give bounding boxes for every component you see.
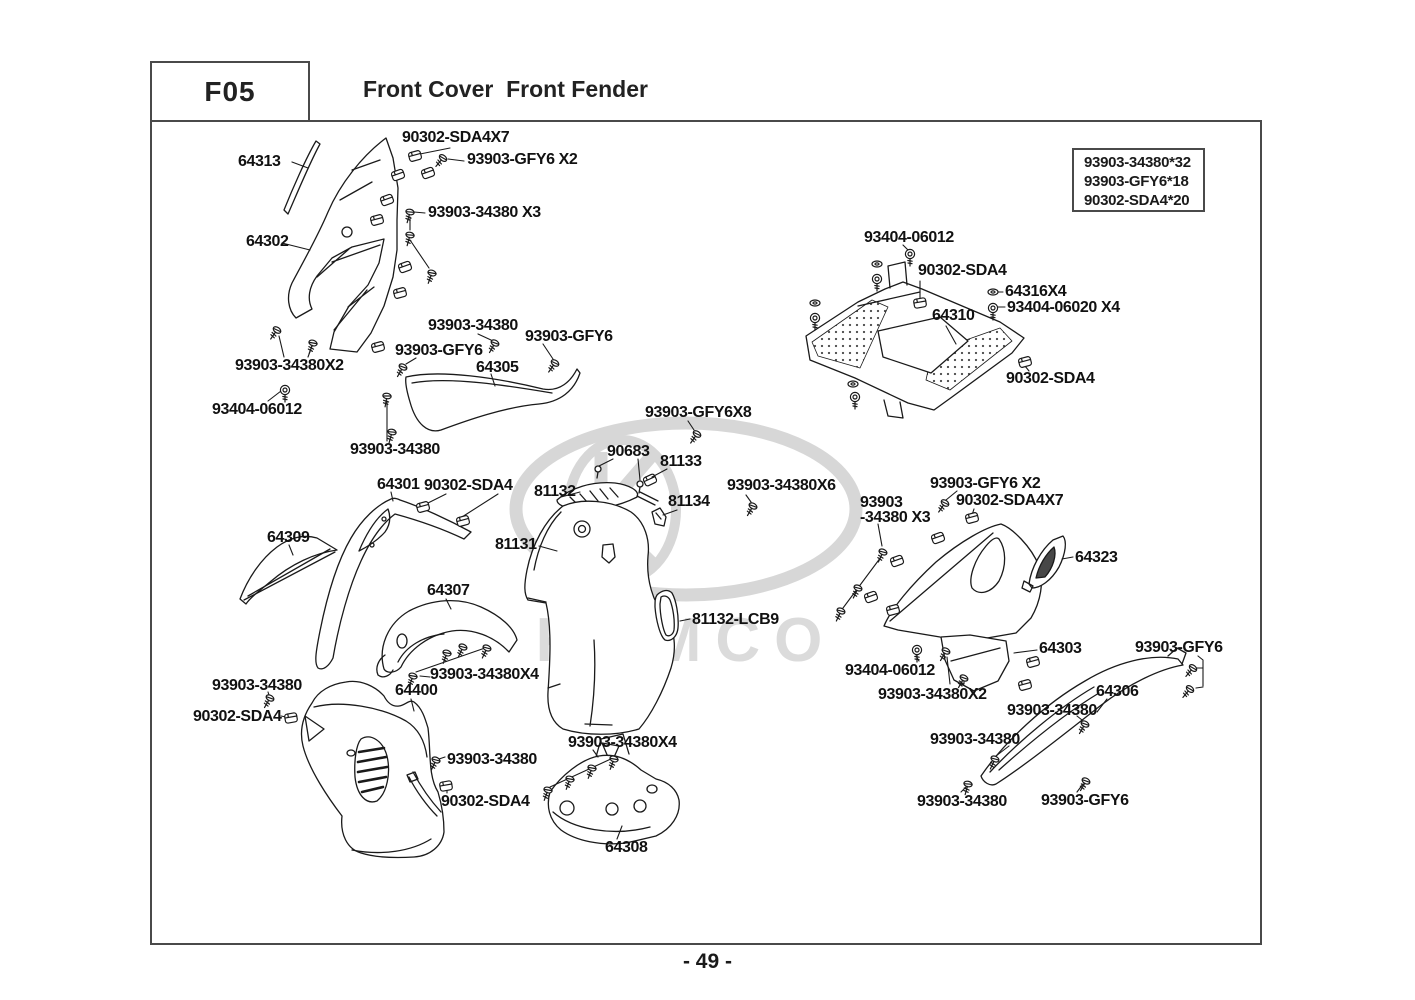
part-label-93903-34380X2: 93903-34380X2 [878, 687, 987, 702]
part-label-64400: 64400 [395, 683, 438, 698]
part-label-93903-34380X2: 93903-34380X2 [235, 358, 344, 373]
part-label-93903-GFY6-X2: 93903-GFY6 X2 [930, 476, 1040, 491]
part-label-93404-06012: 93404-06012 [845, 663, 935, 678]
part-label-64309: 64309 [267, 530, 310, 545]
catalog-page: KYMCO [0, 0, 1415, 1000]
part-label-64301: 64301 [377, 477, 420, 492]
part-label-64310: 64310 [932, 308, 975, 323]
part-label-64323: 64323 [1075, 550, 1118, 565]
part-label-90683: 90683 [607, 444, 650, 459]
part-label-64316X4: 64316X4 [1005, 284, 1066, 299]
page-number: - 49 - [0, 950, 1415, 974]
part-label-93903-GFY6X8: 93903-GFY6X8 [645, 405, 751, 420]
part-label-93903-GFY6: 93903-GFY6 [395, 343, 483, 358]
part-label-90302-SDA4: 90302-SDA4 [441, 794, 530, 809]
part-label-93903-34380: 93903-34380 [1007, 703, 1097, 718]
part-label-64308: 64308 [605, 840, 648, 855]
part-label-81133: 81133 [660, 454, 702, 469]
part-label-93903-34380-X3: 93903-34380 X3 [428, 205, 541, 220]
part-label-93903-34380: 93903-34380 [212, 678, 302, 693]
part-label-90302-SDA4X7: 90302-SDA4X7 [956, 493, 1063, 508]
part-label-64307: 64307 [427, 583, 470, 598]
part-label-64306: 64306 [1096, 684, 1139, 699]
part-label-93903-34380: 93903-34380 [350, 442, 440, 457]
part-label-64305: 64305 [476, 360, 519, 375]
part-label-93903--34380-X3: 93903 -34380 X3 [860, 495, 930, 525]
part-label-90302-SDA4: 90302-SDA4 [193, 709, 282, 724]
part-label-93903-GFY6: 93903-GFY6 [1041, 793, 1129, 808]
part-label-64302: 64302 [246, 234, 289, 249]
part-label-81131: 81131 [495, 537, 537, 552]
part-label-81132-LCB9: 81132-LCB9 [692, 612, 779, 627]
part-label-64313: 64313 [238, 154, 281, 169]
part-label-93903-34380: 93903-34380 [447, 752, 537, 767]
part-label-93903-34380X6: 93903-34380X6 [727, 478, 836, 493]
part-label-90302-SDA4: 90302-SDA4 [918, 263, 1007, 278]
part-label-90302-SDA4X7: 90302-SDA4X7 [402, 130, 509, 145]
labels-layer: 90302-SDA4X793903-GFY6 X26431393903-3438… [0, 0, 1415, 1000]
part-label-93404-06020-X4: 93404-06020 X4 [1007, 300, 1120, 315]
part-label-81132: 81132 [534, 484, 576, 499]
part-label-93903-GFY6-X2: 93903-GFY6 X2 [467, 152, 577, 167]
part-label-90302-SDA4: 90302-SDA4 [1006, 371, 1095, 386]
part-label-93404-06012: 93404-06012 [864, 230, 954, 245]
part-label-81134: 81134 [668, 494, 710, 509]
part-label-93404-06012: 93404-06012 [212, 402, 302, 417]
part-label-90302-SDA4: 90302-SDA4 [424, 478, 513, 493]
part-label-93903-34380X4: 93903-34380X4 [568, 735, 677, 750]
part-label-93903-34380: 93903-34380 [930, 732, 1020, 747]
part-label-93903-GFY6: 93903-GFY6 [1135, 640, 1223, 655]
part-label-93903-GFY6: 93903-GFY6 [525, 329, 613, 344]
part-label-93903-34380X4: 93903-34380X4 [430, 667, 539, 682]
part-label-93903-34380: 93903-34380 [917, 794, 1007, 809]
part-label-93903-34380: 93903-34380 [428, 318, 518, 333]
part-label-64303: 64303 [1039, 641, 1082, 656]
